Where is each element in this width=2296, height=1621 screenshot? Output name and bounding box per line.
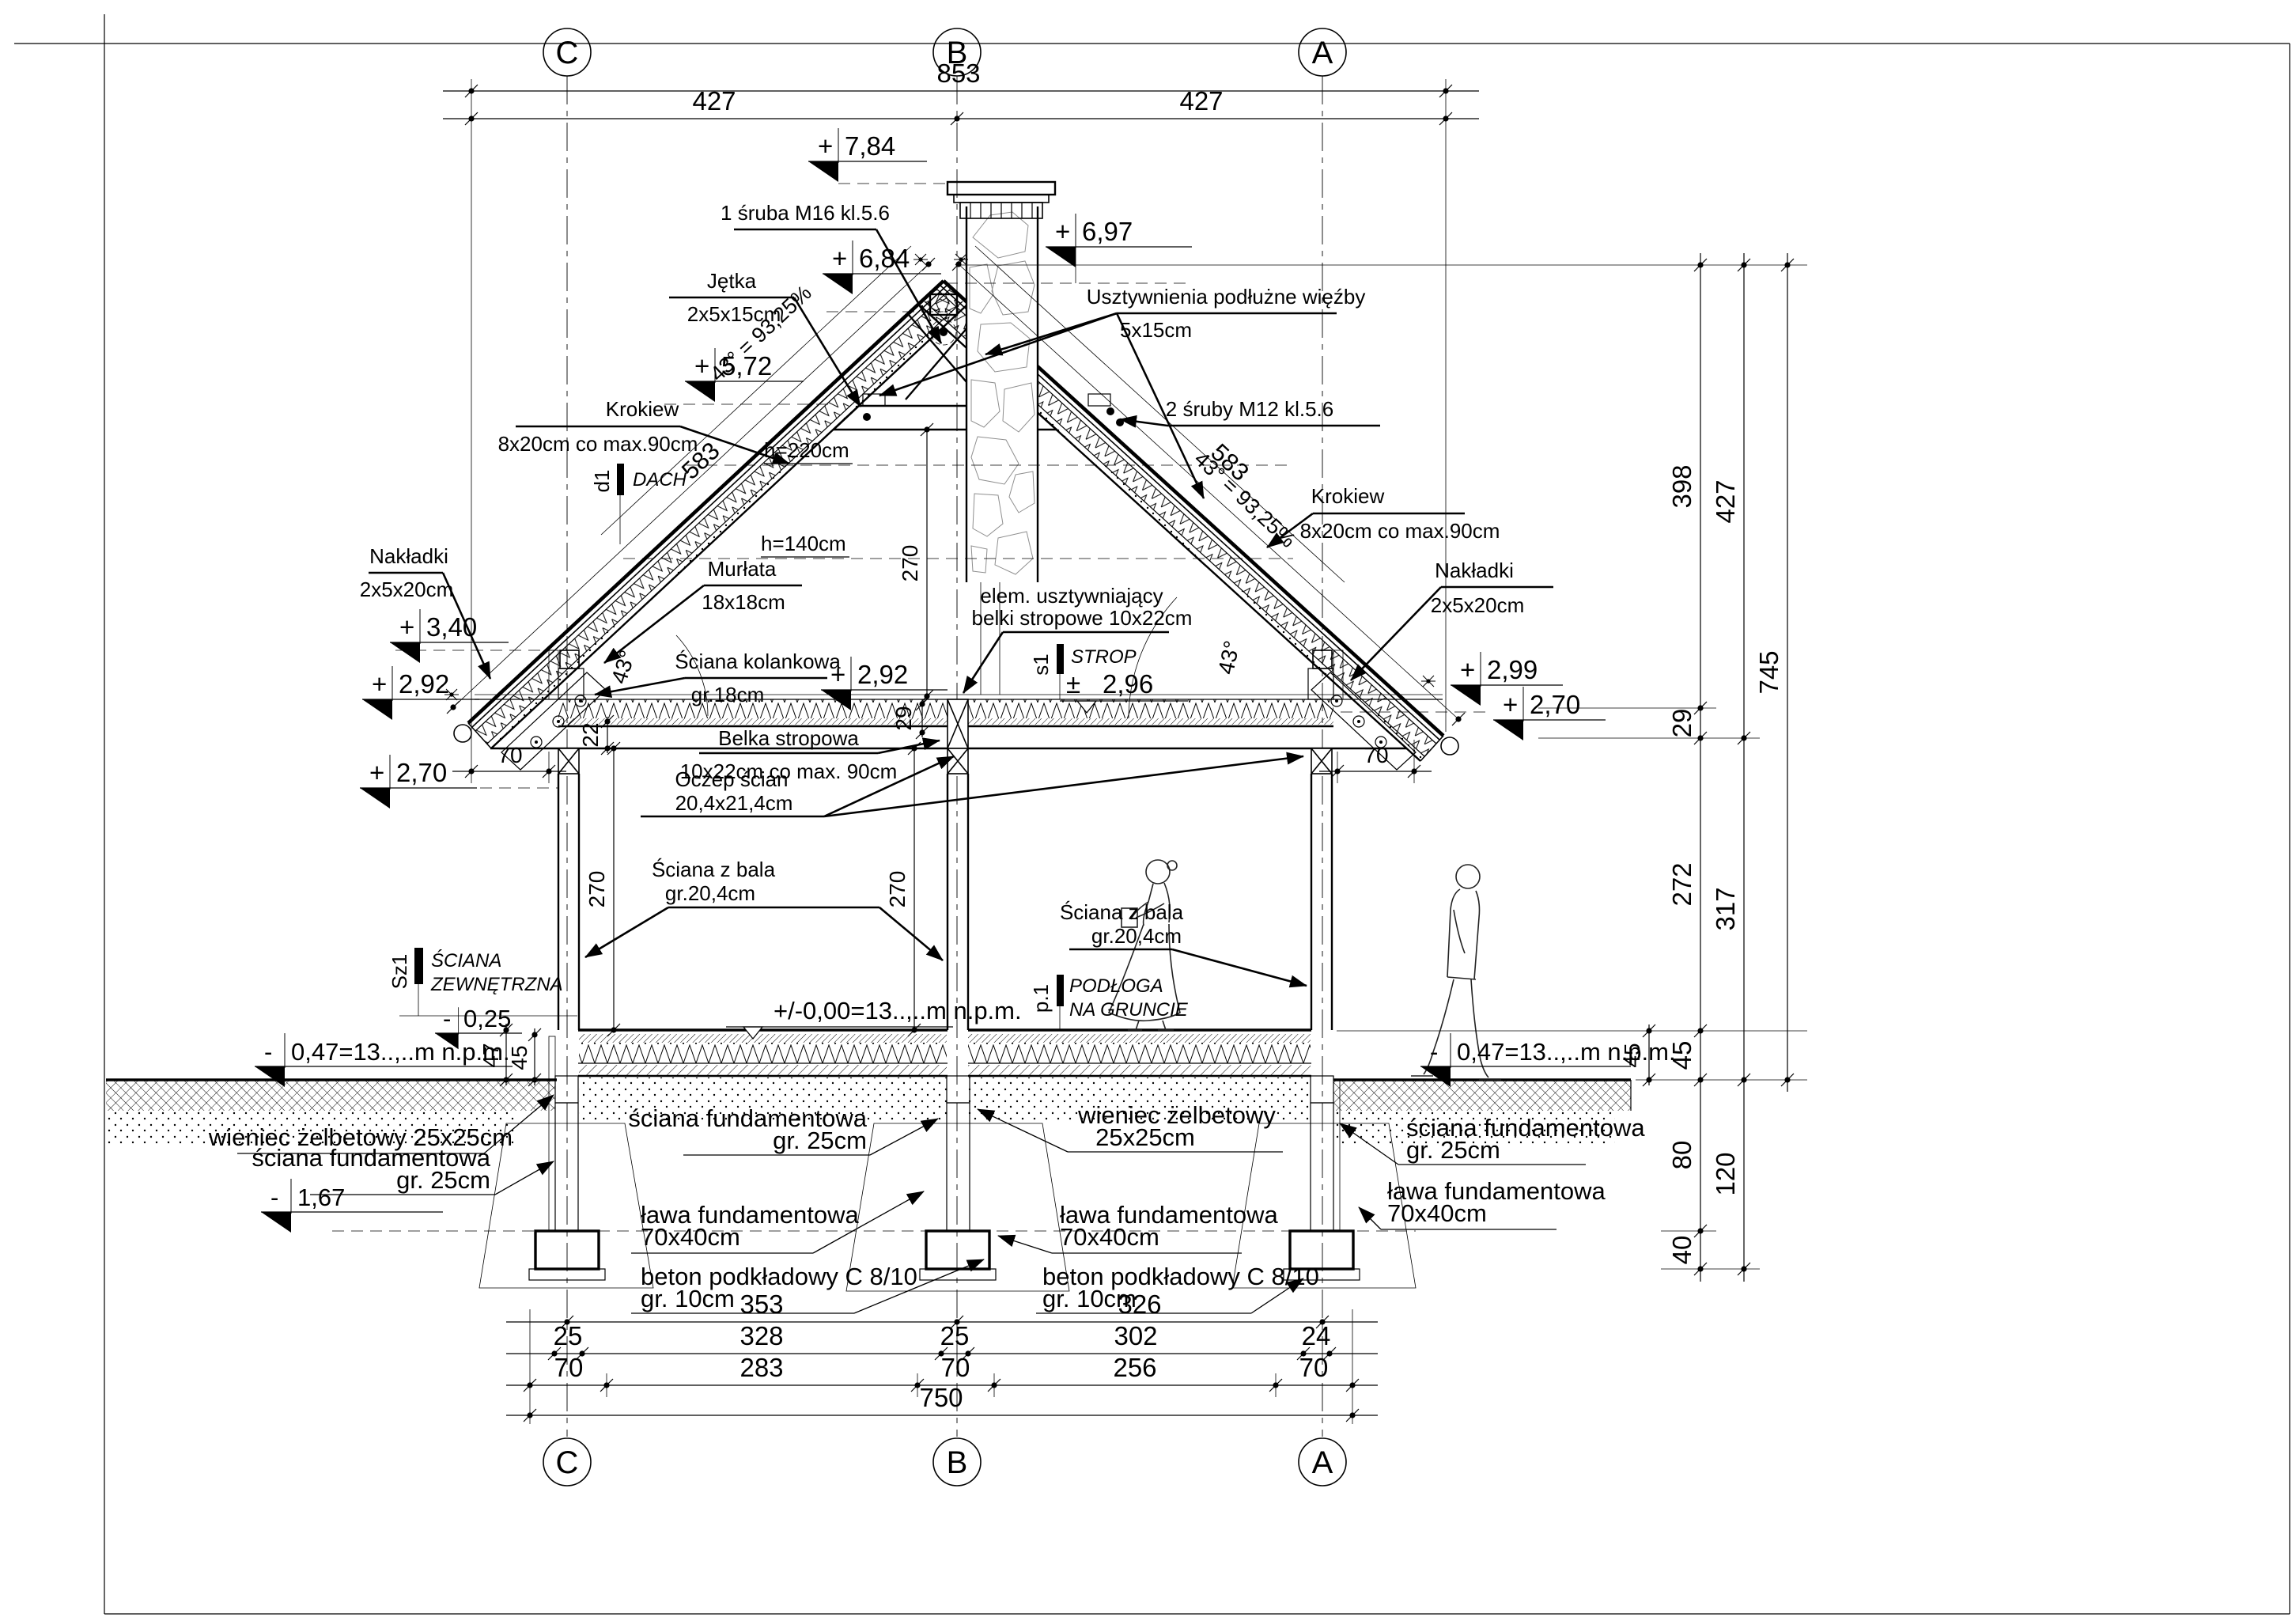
elev-zero: +/-0,00=13..,..m n.p.m.	[774, 997, 1022, 1024]
drawing-canvas: C B A C B A	[0, 0, 2296, 1621]
angle-43-right: 43°	[1213, 638, 1244, 676]
elevation-markers: + 7,84 + 6,97 + 6,84 + 5,72 + 3,40 + 2,9…	[255, 128, 1676, 1233]
label-krokiew-right-2: 8x20cm co max.90cm	[1300, 519, 1500, 543]
elev-299: 2,99	[1487, 655, 1538, 684]
label-nakladki-right-2: 2x5x20cm	[1431, 593, 1525, 617]
elev-340: 3,40	[426, 612, 477, 642]
label-sciana-fund-right-2: gr. 25cm	[1406, 1136, 1500, 1164]
elev-572-sign: +	[694, 351, 709, 381]
elev-167: 1,67	[297, 1184, 345, 1211]
label-usztywnienia-2: 5x15cm	[1120, 318, 1192, 342]
label-jetka-1: Jętka	[707, 269, 757, 293]
bottom-dimensions: 353 326 25 328 25 302 24 70 283 70 256 7…	[506, 1290, 1378, 1424]
label-bala-right-1: Ściana z bala	[1060, 900, 1184, 924]
label-lawa-right-2: 70x40cm	[1387, 1199, 1487, 1227]
label-murlata-1: Murłata	[708, 557, 777, 581]
elev-047r: 0,47=13..,..m n.p.m.	[1457, 1038, 1676, 1066]
axis-top-c: C	[556, 36, 579, 70]
elev-784-sign: +	[818, 131, 833, 161]
label-usztywnienia-1: Usztywnienia podłużne więźby	[1087, 285, 1366, 309]
dim-272: 272	[1667, 862, 1696, 906]
label-beton-mid-2: gr. 10cm	[641, 1285, 735, 1312]
dim-70-3: 70	[1299, 1353, 1329, 1382]
dim-attic-270: 270	[898, 545, 922, 582]
label-lawa-mid-2: 70x40cm	[641, 1223, 740, 1251]
label-sciana-fund-left-2: gr. 25cm	[396, 1166, 490, 1194]
dim-283: 283	[739, 1353, 783, 1382]
marker-s1-label: STROP	[1071, 646, 1137, 668]
label-murlata-2: 18x18cm	[702, 590, 785, 614]
label-belka-1: Belka stropowa	[718, 726, 859, 750]
label-oczep-1: Oczep ścian	[675, 767, 788, 791]
label-krokiew-right-1: Krokiew	[1311, 484, 1385, 508]
marker-sz1: Sz1	[388, 954, 411, 990]
label-wieniec-right-2: 25x25cm	[1095, 1123, 1195, 1151]
dim-745: 745	[1754, 650, 1783, 694]
label-oczep-2: 20,4x21,4cm	[675, 791, 793, 815]
dim-302: 302	[1114, 1321, 1157, 1350]
marker-d1-label: DACH	[633, 469, 687, 490]
label-nakladki-right-1: Nakładki	[1435, 559, 1514, 582]
dim-427-right: 427	[1179, 86, 1223, 116]
dim-750: 750	[919, 1383, 963, 1412]
dim-80: 80	[1667, 1141, 1696, 1170]
marker-d1: d1	[590, 470, 614, 493]
elev-299-sign: +	[1460, 655, 1475, 684]
elev-270l: 2,70	[396, 758, 447, 787]
label-krokiew-left-2: 8x20cm co max.90cm	[498, 432, 698, 456]
dim-room-270-right: 270	[885, 871, 910, 908]
label-bala-right-2: gr.20,4cm	[1091, 924, 1182, 948]
dim-70-2: 70	[941, 1353, 970, 1382]
label-kolankowa-2: gr.18cm	[691, 683, 765, 706]
elev-684-sign: +	[832, 244, 847, 273]
dim-317: 317	[1711, 887, 1740, 930]
dim-353: 353	[739, 1290, 783, 1319]
label-lawa-center-right-2: 70x40cm	[1060, 1223, 1159, 1251]
elev-684: 6,84	[859, 244, 910, 273]
dim-853: 853	[936, 59, 980, 88]
label-krokiew-left-1: Krokiew	[606, 397, 679, 421]
elev-047l: 0,47=13..,..m n.p.m.	[291, 1038, 510, 1066]
ceiling	[475, 695, 1443, 748]
dim-25-m: 25	[940, 1321, 970, 1350]
elev-784: 7,84	[845, 131, 895, 161]
elev-296: 2,96	[1103, 669, 1153, 699]
label-jetka-2: 2x5x15cm	[687, 302, 781, 326]
beam-cross-block-b	[948, 699, 968, 748]
marker-sz1-label2: ZEWNĘTRZNA	[430, 974, 563, 995]
elev-697: 6,97	[1082, 217, 1133, 246]
elev-270l-sign: +	[369, 758, 384, 787]
axis-bottom-a: A	[1312, 1445, 1333, 1480]
elev-025: 0,25	[463, 1005, 511, 1032]
dim-427-left: 427	[692, 86, 736, 116]
elev-296-sign: ±	[1066, 669, 1080, 699]
elev-340-sign: +	[399, 612, 414, 642]
dim-120: 120	[1711, 1152, 1740, 1195]
elev-047r-sign: -	[1430, 1038, 1438, 1066]
label-sciana-fund-mid-2: gr. 25cm	[773, 1127, 867, 1154]
axis-bottom-c: C	[556, 1445, 579, 1480]
label-bala-left-1: Ściana z bala	[652, 858, 776, 881]
house-section-drawing: C B A C B A	[0, 0, 2296, 1621]
label-kolankowa-1: Ściana kolankowa	[675, 650, 841, 673]
marker-p1-label2: NA GRUNCIE	[1069, 999, 1189, 1021]
dim-427-col: 427	[1711, 479, 1740, 523]
label-bala-left-2: gr.20,4cm	[665, 881, 755, 905]
label-beton-right-2: gr. 10cm	[1042, 1285, 1137, 1312]
angle-43-left: 43°	[607, 647, 641, 687]
marker-sz1-label1: ŚCIANA	[431, 949, 501, 971]
label-elem-2: belki stropowe 10x22cm	[972, 606, 1193, 630]
dim-328: 328	[739, 1321, 783, 1350]
dim-398: 398	[1667, 464, 1696, 508]
elev-167-sign: -	[270, 1184, 278, 1211]
h140-label: h=140cm	[761, 532, 846, 555]
elev-270r: 2,70	[1530, 690, 1580, 719]
elev-292m: 2,92	[857, 660, 908, 689]
dim-eave-70-right: 70	[1364, 743, 1388, 767]
axis-bottom-b: B	[947, 1445, 968, 1480]
dim-256: 256	[1113, 1353, 1156, 1382]
elev-047l-sign: -	[264, 1038, 272, 1066]
elev-025-sign: -	[443, 1005, 451, 1032]
elev-572: 5,72	[721, 351, 772, 381]
label-nakladki-left-1: Nakładki	[369, 544, 448, 568]
dim-eave-70-left: 70	[497, 743, 522, 767]
dim-40: 40	[1667, 1236, 1696, 1265]
dim-29-ceiling: 29	[891, 706, 916, 730]
elev-292l-sign: +	[372, 669, 387, 699]
dim-room-270-left: 270	[584, 871, 609, 908]
label-elem-1: elem. usztywniający	[980, 584, 1163, 608]
label-nakladki-left-2: 2x5x20cm	[360, 578, 454, 601]
label-sruba-m16: 1 śruba M16 kl.5.6	[721, 201, 890, 225]
floor	[578, 1030, 1311, 1076]
dim-22: 22	[578, 722, 603, 747]
dim-24: 24	[1302, 1321, 1331, 1350]
label-sruby-m12: 2 śruby M12 kl.5.6	[1166, 397, 1333, 421]
dim-70-1: 70	[554, 1353, 584, 1382]
axis-top-a: A	[1312, 36, 1333, 70]
elev-697-sign: +	[1055, 217, 1070, 246]
marker-p1: p.1	[1029, 984, 1053, 1013]
marker-p1-label1: PODŁOGA	[1069, 975, 1163, 997]
elev-292l: 2,92	[399, 669, 449, 699]
marker-s1: s1	[1029, 653, 1053, 675]
dim-25-l: 25	[554, 1321, 583, 1350]
elev-270r-sign: +	[1503, 690, 1518, 719]
dim-29: 29	[1667, 709, 1696, 738]
